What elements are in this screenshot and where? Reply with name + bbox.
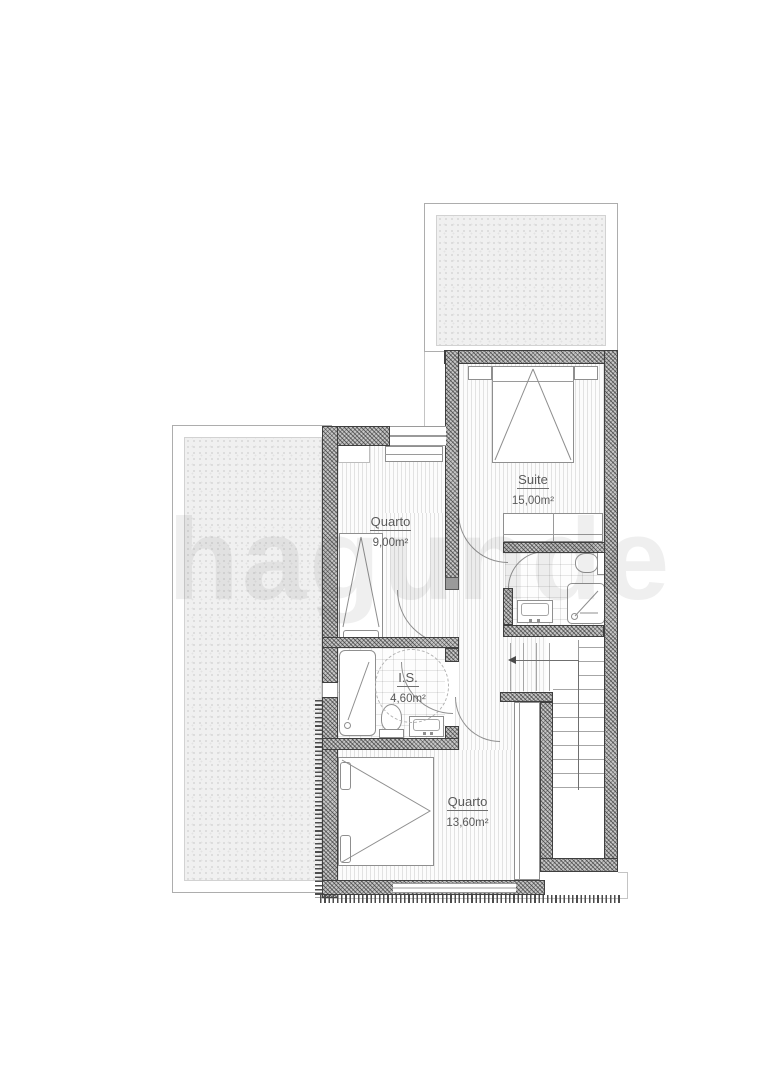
quarto1-area: 9,00m² xyxy=(373,537,409,549)
quarto2-label: Quarto 13,60m² xyxy=(420,792,515,832)
wall-stairs-left xyxy=(540,702,553,862)
door-frame-block xyxy=(445,577,459,590)
wall-left-lower xyxy=(322,697,338,898)
wall-right xyxy=(604,350,618,872)
suite-bed-fold-lines xyxy=(495,369,571,460)
floor-plan-page: Suite 15,00m² Quarto 9,00m² I.S. 4,60m² … xyxy=(0,0,763,1080)
insulation-teeth-left xyxy=(315,700,322,898)
corridor-terrace-window xyxy=(390,426,446,446)
is-label: I.S. 4,60m² xyxy=(380,668,436,708)
is-shower-diagonal xyxy=(348,662,369,720)
is-area: 4,60m² xyxy=(390,693,426,705)
suite-area: 15,00m² xyxy=(512,495,554,507)
quarto2-name: Quarto xyxy=(447,794,489,811)
wall-ensuite-bottom xyxy=(503,625,604,637)
ensuite-shower-diagonal xyxy=(575,591,598,616)
wall-quarto2-top-left xyxy=(322,738,459,750)
quarto2-bed-fold-lines xyxy=(342,760,430,862)
is-name: I.S. xyxy=(397,670,419,687)
wall-quarto2-top-right xyxy=(500,692,553,702)
wall-is-right-upper xyxy=(445,648,459,662)
wall-is-top xyxy=(322,637,459,648)
quarto2-window xyxy=(393,883,516,893)
quarto1-name: Quarto xyxy=(370,514,412,531)
wall-suite-quarto1 xyxy=(445,350,459,590)
quarto2-area: 13,60m² xyxy=(446,817,488,829)
insulation-teeth-bottom xyxy=(320,895,620,903)
is-window xyxy=(322,683,338,697)
wall-stairs-bottom xyxy=(540,858,618,872)
wall-suite-top xyxy=(444,350,618,364)
wall-ensuite-left-stub xyxy=(503,588,513,625)
suite-name: Suite xyxy=(517,472,549,489)
suite-label: Suite 15,00m² xyxy=(488,470,578,510)
wall-suite-ensuite xyxy=(503,542,605,553)
quarto1-label: Quarto 9,00m² xyxy=(348,512,433,552)
